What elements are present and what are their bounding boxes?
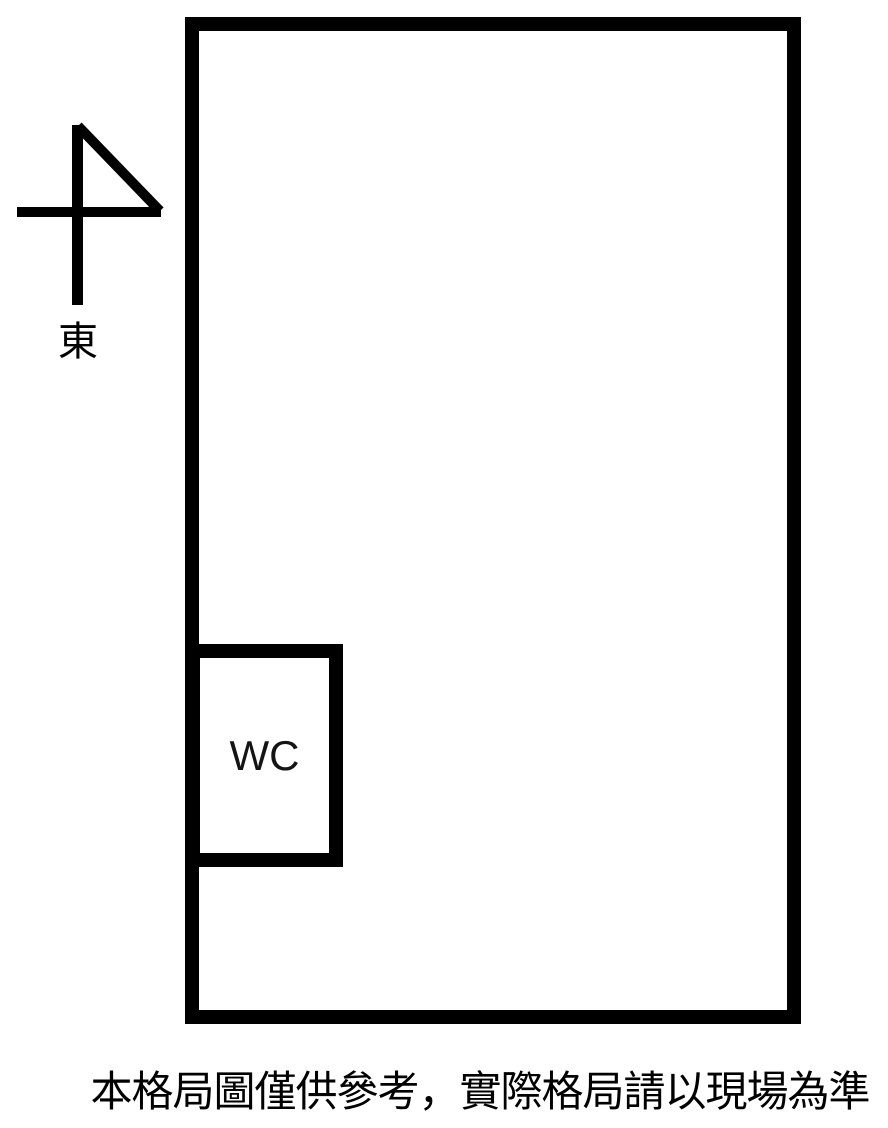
room-outline — [185, 17, 801, 1024]
disclaimer-caption: 本格局圖僅供參考，實際格局請以現場為準 — [80, 1058, 880, 1119]
wc-room-label: WC — [230, 735, 300, 777]
floorplan-page: 東 WC 本格局圖僅供參考，實際格局請以現場為準 — [0, 0, 888, 1128]
compass-arrow-icon — [0, 100, 180, 320]
wc-room: WC — [186, 644, 343, 867]
compass-diagonal-line — [78, 126, 160, 211]
compass-east-label: 東 — [47, 320, 109, 364]
